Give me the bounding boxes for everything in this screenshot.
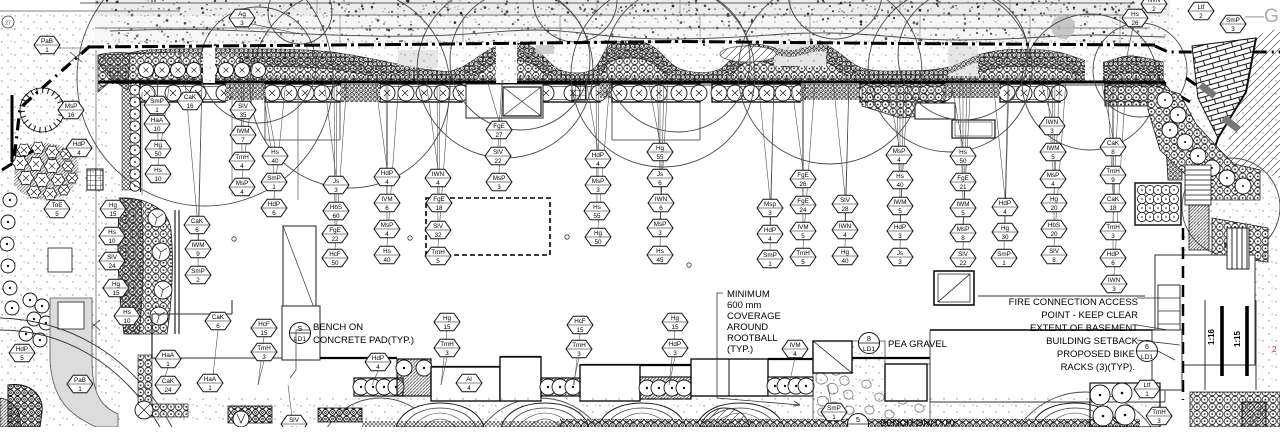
svg-text:3: 3 — [898, 259, 902, 266]
svg-text:5: 5 — [55, 211, 59, 218]
svg-text:18: 18 — [1109, 205, 1117, 212]
svg-text:Hg: Hg — [841, 249, 850, 256]
svg-text:2: 2 — [1272, 345, 1277, 354]
svg-text:Hg: Hg — [112, 281, 121, 288]
svg-text:SlV: SlV — [289, 417, 300, 424]
svg-text:Js: Js — [897, 250, 903, 257]
svg-text:600 mm: 600 mm — [727, 300, 761, 311]
svg-text:35: 35 — [239, 112, 247, 119]
svg-text:FgE: FgE — [957, 175, 969, 182]
svg-text:Js: Js — [657, 171, 663, 178]
svg-text:ToE: ToE — [52, 202, 63, 209]
svg-text:RACKS (3)(TYP).: RACKS (3)(TYP). — [1061, 362, 1135, 373]
svg-text:3: 3 — [1112, 286, 1116, 293]
svg-text:4: 4 — [385, 231, 389, 238]
svg-text:5: 5 — [1051, 154, 1055, 161]
svg-text:FIRE CONNECTION ACCESS: FIRE CONNECTION ACCESS — [1009, 297, 1138, 308]
svg-text:45: 45 — [656, 257, 664, 264]
svg-text:3: 3 — [577, 351, 581, 358]
svg-text:16: 16 — [67, 112, 75, 119]
svg-text:(TYP.): (TYP.) — [727, 344, 753, 355]
svg-text:BUILDING SETBACK: BUILDING SETBACK — [1046, 336, 1139, 347]
svg-text:1: 1 — [166, 361, 170, 368]
svg-text:4: 4 — [793, 351, 797, 358]
svg-text:HaA: HaA — [204, 376, 217, 383]
svg-text:LD1: LD1 — [863, 346, 875, 353]
svg-text:4: 4 — [467, 385, 471, 392]
svg-text:4: 4 — [768, 236, 772, 243]
svg-text:PaB: PaB — [74, 377, 86, 384]
svg-text:Hg: Hg — [109, 202, 118, 209]
svg-text:IWM: IWM — [1047, 145, 1060, 152]
svg-text:IWN: IWN — [432, 171, 445, 178]
svg-text:HdP: HdP — [1107, 251, 1119, 258]
svg-text:40: 40 — [271, 158, 279, 165]
svg-text:4: 4 — [240, 163, 244, 170]
svg-text:4: 4 — [897, 157, 901, 164]
svg-text:4: 4 — [843, 232, 847, 239]
svg-text:TmH: TmH — [235, 154, 249, 161]
svg-text:FgE: FgE — [433, 196, 445, 203]
svg-text:IWN: IWN — [1046, 119, 1059, 126]
svg-text:MsP: MsP — [592, 178, 605, 185]
svg-text:HdP: HdP — [268, 201, 280, 208]
svg-text:MsP: MsP — [1047, 172, 1060, 179]
svg-text:FgE: FgE — [797, 198, 809, 205]
svg-text:SlV: SlV — [238, 103, 249, 110]
svg-text:3: 3 — [1231, 26, 1235, 33]
svg-text:CaK: CaK — [184, 94, 197, 101]
svg-text:16: 16 — [186, 103, 194, 110]
svg-text:SmP: SmP — [827, 405, 841, 412]
svg-text:6: 6 — [1111, 260, 1115, 267]
svg-text:IWM: IWM — [957, 201, 970, 208]
svg-text:6: 6 — [216, 323, 220, 330]
svg-text:1: 1 — [155, 107, 159, 114]
svg-text:Al: Al — [466, 376, 472, 383]
svg-text:HaA: HaA — [162, 352, 175, 359]
svg-text:SlV: SlV — [493, 149, 504, 156]
svg-text:Js: Js — [333, 178, 339, 185]
svg-text:TmH: TmH — [440, 341, 454, 348]
svg-text:TmH: TmH — [1152, 409, 1166, 416]
svg-text:1:16: 1:16 — [1207, 328, 1216, 345]
svg-text:8: 8 — [867, 336, 871, 343]
svg-text:15: 15 — [671, 324, 679, 331]
svg-text:50: 50 — [959, 158, 967, 165]
svg-text:Ag: Ag — [238, 11, 246, 18]
svg-text:HdP: HdP — [372, 355, 384, 362]
svg-text:6: 6 — [385, 205, 389, 212]
svg-text:LD1: LD1 — [1141, 354, 1153, 361]
svg-text:IWN: IWN — [1108, 277, 1121, 284]
svg-text:SlV: SlV — [433, 223, 444, 230]
svg-text:HdP: HdP — [764, 227, 776, 234]
svg-text:10: 10 — [108, 238, 116, 245]
svg-text:3: 3 — [1111, 233, 1115, 240]
svg-text:3: 3 — [334, 187, 338, 194]
svg-text:3: 3 — [898, 233, 902, 240]
svg-text:MsP: MsP — [893, 148, 906, 155]
svg-text:Hs: Hs — [123, 309, 131, 316]
svg-text:22: 22 — [959, 260, 967, 267]
svg-text:CaK: CaK — [212, 314, 225, 321]
svg-text:BENCH ON(TYP): BENCH ON(TYP) — [880, 418, 955, 427]
svg-text:SmP: SmP — [1226, 17, 1240, 24]
svg-text:4: 4 — [1003, 209, 1007, 216]
svg-text:Hg: Hg — [594, 230, 603, 237]
svg-text:24: 24 — [799, 207, 807, 214]
svg-text:EXTENT OF BASEMENT: EXTENT OF BASEMENT — [1030, 323, 1138, 334]
svg-text:TmH: TmH — [431, 249, 445, 256]
svg-text:3: 3 — [596, 187, 600, 194]
svg-text:HdP: HdP — [999, 200, 1011, 207]
svg-text:8: 8 — [1052, 257, 1056, 264]
svg-text:6: 6 — [659, 205, 663, 212]
svg-text:6: 6 — [272, 210, 276, 217]
svg-text:TmH: TmH — [796, 250, 810, 257]
svg-text:1: 1 — [78, 386, 82, 393]
svg-text:1: 1 — [208, 385, 212, 392]
svg-text:SlV: SlV — [840, 197, 851, 204]
svg-text:SmP: SmP — [150, 98, 164, 105]
svg-text:3: 3 — [1050, 128, 1054, 135]
svg-text:AROUND: AROUND — [727, 322, 768, 333]
svg-text:20: 20 — [1050, 205, 1058, 212]
svg-text:IWM: IWM — [192, 242, 205, 249]
svg-text:27: 27 — [5, 21, 11, 27]
svg-text:CONCRETE PAD(TYP.): CONCRETE PAD(TYP.) — [313, 335, 414, 346]
svg-text:2: 2 — [1199, 13, 1203, 20]
svg-text:20: 20 — [1050, 231, 1058, 238]
svg-text:Hg: Hg — [1001, 225, 1010, 232]
svg-text:5: 5 — [801, 259, 805, 266]
svg-text:IWN: IWN — [1148, 0, 1161, 4]
svg-text:30: 30 — [1001, 234, 1009, 241]
svg-text:9: 9 — [196, 251, 200, 258]
svg-text:Hs: Hs — [1131, 11, 1139, 18]
svg-text:Hg: Hg — [154, 142, 163, 149]
svg-text:Hs: Hs — [656, 248, 664, 255]
svg-text:SmP: SmP — [267, 175, 281, 182]
svg-text:15: 15 — [443, 324, 451, 331]
svg-text:CaK: CaK — [1107, 140, 1120, 147]
svg-text:4: 4 — [436, 180, 440, 187]
svg-text:IVM: IVM — [797, 224, 808, 231]
svg-text:COVERAGE: COVERAGE — [727, 311, 781, 322]
svg-text:50: 50 — [154, 151, 162, 158]
svg-text:3: 3 — [240, 20, 244, 27]
svg-text:HcF: HcF — [574, 318, 586, 325]
svg-text:SlV: SlV — [1049, 248, 1060, 255]
svg-text:5: 5 — [898, 208, 902, 215]
svg-text:Hg: Hg — [1050, 196, 1059, 203]
svg-text:Hs: Hs — [593, 204, 601, 211]
svg-text:2: 2 — [1152, 6, 1156, 13]
svg-text:15: 15 — [112, 290, 120, 297]
svg-text:Hs: Hs — [959, 149, 967, 156]
svg-text:Ltf: Ltf — [1143, 382, 1150, 389]
svg-text:1: 1 — [1002, 260, 1006, 267]
svg-text:5: 5 — [436, 258, 440, 265]
svg-text:3: 3 — [262, 354, 266, 361]
svg-text:40: 40 — [383, 257, 391, 264]
svg-text:TmH: TmH — [1106, 224, 1120, 231]
svg-text:IWM: IWM — [894, 199, 907, 206]
svg-text:32: 32 — [434, 232, 442, 239]
svg-text:22: 22 — [331, 236, 339, 243]
svg-text:15: 15 — [109, 211, 117, 218]
svg-text:HdP: HdP — [894, 224, 906, 231]
svg-text:3: 3 — [445, 350, 449, 357]
svg-text:CaK: CaK — [1107, 196, 1120, 203]
svg-text:CaK: CaK — [162, 378, 175, 385]
svg-text:PaB: PaB — [41, 38, 53, 45]
svg-text:4: 4 — [1051, 181, 1055, 188]
svg-text:MINIMUM: MINIMUM — [727, 289, 770, 300]
svg-text:10: 10 — [123, 318, 131, 325]
svg-text:3: 3 — [1157, 418, 1161, 425]
svg-text:ROOTBALL: ROOTBALL — [727, 333, 778, 344]
svg-text:Hg: Hg — [671, 315, 680, 322]
svg-text:MsP: MsP — [65, 103, 78, 110]
svg-text:1:15: 1:15 — [1233, 330, 1242, 347]
svg-text:IVM: IVM — [381, 196, 392, 203]
svg-text:HbS: HbS — [330, 204, 342, 211]
svg-text:4: 4 — [596, 161, 600, 168]
svg-text:IWM: IWM — [237, 128, 250, 135]
svg-text:1: 1 — [45, 47, 49, 54]
svg-text:MsP: MsP — [957, 226, 970, 233]
svg-text:FgE: FgE — [797, 172, 809, 179]
svg-text:3: 3 — [673, 350, 677, 357]
svg-text:8: 8 — [961, 235, 965, 242]
svg-text:40: 40 — [841, 258, 849, 265]
svg-text:1: 1 — [832, 414, 836, 421]
svg-text:Hs: Hs — [896, 173, 904, 180]
svg-text:HbS: HbS — [1048, 222, 1060, 229]
svg-text:4: 4 — [240, 189, 244, 196]
svg-text:10: 10 — [153, 126, 161, 133]
svg-text:15: 15 — [576, 327, 584, 334]
svg-text:1: 1 — [768, 261, 772, 268]
svg-text:9: 9 — [1111, 177, 1115, 184]
svg-text:4: 4 — [376, 364, 380, 371]
svg-text:5: 5 — [801, 233, 805, 240]
svg-text:6: 6 — [658, 180, 662, 187]
svg-text:55: 55 — [656, 154, 664, 161]
svg-text:MsP: MsP — [236, 180, 249, 187]
svg-text:PEA GRAVEL: PEA GRAVEL — [888, 339, 947, 350]
svg-text:5: 5 — [961, 210, 965, 217]
svg-text:IWN: IWN — [839, 223, 852, 230]
svg-text:24: 24 — [108, 263, 116, 270]
svg-text:Ltf: Ltf — [1197, 4, 1204, 11]
svg-text:4: 4 — [77, 150, 81, 157]
svg-text:MsP: MsP — [381, 222, 394, 229]
svg-text:8: 8 — [1111, 149, 1115, 156]
svg-text:6: 6 — [1145, 344, 1149, 351]
svg-text:Hs: Hs — [383, 248, 391, 255]
svg-text:27: 27 — [495, 132, 503, 139]
svg-text:5: 5 — [20, 355, 24, 362]
svg-text:2: 2 — [1262, 250, 1267, 259]
svg-text:HdP: HdP — [592, 152, 604, 159]
svg-text:POINT - KEEP CLEAR: POINT - KEEP CLEAR — [1041, 310, 1138, 321]
svg-text:SlV: SlV — [107, 254, 118, 261]
svg-text:26: 26 — [1131, 20, 1139, 27]
svg-text:TmH: TmH — [257, 345, 271, 352]
svg-text:Hs: Hs — [108, 229, 116, 236]
svg-text:3: 3 — [658, 230, 662, 237]
svg-text:SmP: SmP — [763, 252, 777, 259]
svg-text:S: S — [298, 326, 303, 333]
svg-text:CaK: CaK — [191, 218, 204, 225]
svg-text:40: 40 — [896, 182, 904, 189]
svg-text:1: 1 — [272, 184, 276, 191]
svg-text:HcF: HcF — [329, 251, 341, 258]
svg-text:1: 1 — [1145, 391, 1149, 398]
svg-text:SmP: SmP — [997, 251, 1011, 258]
svg-text:21: 21 — [959, 184, 967, 191]
svg-text:SmP: SmP — [191, 268, 205, 275]
svg-text:IWN: IWN — [655, 196, 668, 203]
svg-text:HdP: HdP — [381, 170, 393, 177]
svg-text:TmH: TmH — [1106, 168, 1120, 175]
svg-text:5: 5 — [856, 417, 860, 424]
svg-text:MsP: MsP — [493, 175, 506, 182]
svg-text:7: 7 — [241, 137, 245, 144]
svg-text:Hg: Hg — [656, 145, 665, 152]
svg-text:Hs: Hs — [154, 167, 162, 174]
svg-text:4: 4 — [385, 179, 389, 186]
svg-text:HcF: HcF — [258, 321, 270, 328]
svg-text:50: 50 — [594, 239, 602, 246]
svg-text:Hg: Hg — [443, 315, 452, 322]
svg-text:Msp: Msp — [764, 201, 776, 208]
svg-text:―G: ―G — [1245, 6, 1279, 27]
svg-text:FgE: FgE — [329, 227, 341, 234]
svg-text:18: 18 — [435, 205, 443, 212]
svg-text:BENCH ON: BENCH ON — [313, 322, 363, 333]
svg-text:22: 22 — [494, 158, 502, 165]
svg-text:FgE: FgE — [493, 123, 505, 130]
svg-text:26: 26 — [799, 181, 807, 188]
svg-text:24: 24 — [164, 387, 172, 394]
svg-text:MsP: MsP — [654, 221, 667, 228]
svg-text:HdP: HdP — [669, 341, 681, 348]
svg-text:28: 28 — [841, 206, 849, 213]
svg-text:15: 15 — [260, 330, 268, 337]
svg-text:Hs: Hs — [271, 149, 279, 156]
svg-text:HaA: HaA — [151, 117, 164, 124]
svg-text:TmH: TmH — [572, 342, 586, 349]
svg-text:55: 55 — [593, 213, 601, 220]
svg-text:3: 3 — [497, 184, 501, 191]
svg-text:2: 2 — [196, 277, 200, 284]
svg-text:IVM: IVM — [789, 342, 800, 349]
svg-text:SlV: SlV — [958, 251, 969, 258]
svg-text:3: 3 — [768, 210, 772, 217]
svg-text:50: 50 — [331, 260, 339, 267]
svg-text:PROPOSED BIKE: PROPOSED BIKE — [1057, 349, 1135, 360]
svg-text:10: 10 — [154, 176, 162, 183]
svg-text:HdP: HdP — [73, 141, 85, 148]
svg-text:6: 6 — [195, 227, 199, 234]
svg-text:60: 60 — [332, 213, 340, 220]
svg-text:HdP: HdP — [16, 346, 28, 353]
